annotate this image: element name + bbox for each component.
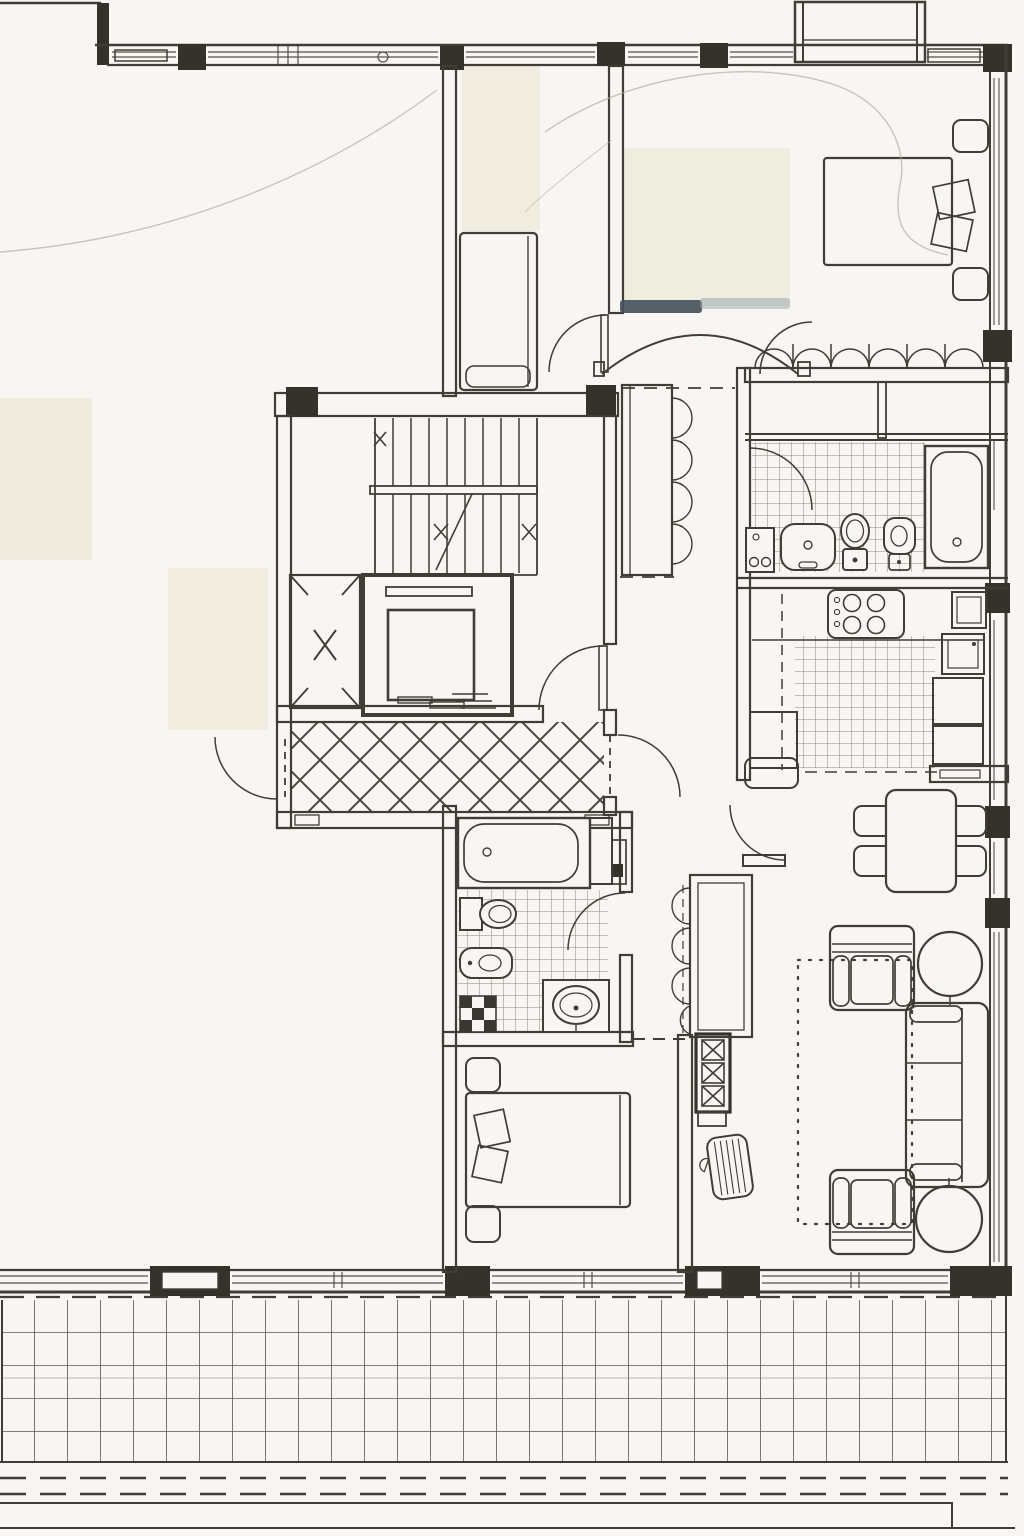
party-wall-lower: [443, 806, 456, 1272]
bottom-wall: [0, 1266, 1012, 1296]
wall-pillar: [445, 1266, 490, 1296]
upper-left-room-door: [549, 315, 608, 372]
nightstand: [953, 268, 988, 300]
wall-pillar: [700, 43, 728, 68]
corridor-wardrobe: [622, 385, 692, 575]
pillar-inner-box: [697, 1271, 722, 1289]
stair-pillar: [286, 387, 318, 417]
stair-right-wall-stub: [604, 710, 616, 735]
washbasin: [781, 524, 835, 570]
round-side-table: [916, 1186, 982, 1252]
toilet-bowl: [841, 514, 869, 548]
balcony: [795, 2, 925, 62]
living-room: [696, 926, 988, 1254]
sofa: [906, 1003, 988, 1187]
neighbor-stub-pillar: [97, 3, 109, 65]
armchair-south: [830, 1170, 914, 1254]
closet-band-bottom: [745, 434, 1008, 440]
stair-left-wall: [277, 416, 291, 828]
tape-patch: [622, 148, 790, 306]
apartment-entry-door: [539, 646, 607, 710]
tape-patch: [462, 66, 540, 231]
wall-inner-box: [940, 770, 980, 778]
wall-pillar: [950, 1266, 1012, 1296]
pillow: [474, 1109, 510, 1148]
lower-bathroom-wall-b: [620, 955, 632, 1042]
double-bed: [466, 1093, 630, 1207]
cabinet: [698, 1112, 726, 1126]
bathtub: [925, 446, 988, 568]
lower-bedroom: [466, 1058, 630, 1242]
elevator-counterweight: [386, 587, 472, 596]
nightstand: [466, 1206, 500, 1242]
wall-pillar: [983, 44, 1012, 72]
tape-patch: [0, 398, 92, 560]
lobby-hallway-door: [618, 735, 680, 797]
tv-unit: [696, 1034, 730, 1126]
seat-cushion: [851, 1180, 893, 1228]
magazine-rack: [696, 1134, 754, 1202]
upper-left-room: [460, 233, 537, 390]
kitchen-stub-wall: [930, 766, 1008, 782]
top-wall: [95, 2, 1012, 72]
neighbor-lobby-door: [215, 737, 277, 799]
wall-inner-box: [295, 815, 319, 825]
nightstand: [466, 1058, 500, 1092]
wall-pillar: [983, 330, 1012, 362]
sofa-arm: [910, 1006, 962, 1022]
ink-smear-dark: [620, 300, 702, 313]
bathroom-kitchen-wall: [737, 578, 1008, 588]
x-shaft: [290, 575, 360, 708]
closet-door-arcs: [672, 888, 690, 1034]
stair-pillar: [586, 385, 616, 415]
fridge: [933, 678, 983, 724]
stair-landing-edge: [370, 486, 537, 494]
window-sill-box: [928, 49, 980, 62]
ink-smear-light: [700, 298, 790, 309]
room-divider-wall: [609, 66, 623, 313]
sofa-cushion-lines: [906, 1063, 962, 1120]
bathroom-bedroom-wall: [443, 1032, 633, 1046]
armrest: [833, 956, 849, 1006]
counter-unit: [933, 726, 983, 764]
bedroom-living-wall: [678, 1035, 692, 1272]
armrest: [895, 956, 911, 1006]
bidet: [884, 518, 915, 554]
staircase-core: [290, 418, 537, 715]
pillar-inner-box: [162, 1272, 218, 1289]
floor-plan-page: { "document": { "type": "architectural-f…: [0, 0, 1024, 1536]
floor-plan-canvas: [0, 0, 1024, 1536]
toilet-tank: [460, 898, 482, 930]
terrace-tile-grid: [2, 1300, 1006, 1462]
right-window-glazing: [994, 78, 999, 1262]
closet-divider: [878, 382, 886, 438]
armchair-north: [830, 926, 914, 1010]
round-side-table: [918, 932, 982, 996]
pillow-drawer: [466, 366, 530, 387]
sideboard: [745, 758, 798, 788]
kitchen-tiles: [795, 636, 935, 768]
closet-hanging-rail: [755, 344, 983, 368]
neighbor-stub: [0, 3, 100, 62]
stair-treads: [393, 418, 519, 573]
party-wall-upper: [443, 66, 456, 396]
nightstand: [953, 120, 988, 152]
wall-pillar: [178, 44, 206, 70]
wardrobe-door-arcs: [672, 398, 692, 564]
hallway-closet: [672, 875, 752, 1037]
seat-cushion: [851, 956, 893, 1004]
stair-right-wall-upper: [604, 416, 616, 644]
wall-pillar: [597, 42, 625, 66]
elevator-car: [388, 610, 474, 700]
bidet: [460, 948, 512, 978]
stair-direction-marks: [374, 432, 536, 570]
wall-pillar: [985, 898, 1010, 928]
pillow: [472, 1145, 508, 1183]
elevator: [363, 575, 512, 715]
kitchen-corridor-wall: [737, 368, 750, 780]
armrest: [895, 1178, 911, 1228]
checker-drain: [460, 996, 496, 1032]
wall-pillar: [985, 806, 1010, 838]
tape-patch: [168, 568, 268, 730]
bedroom-closet-wall: [745, 368, 1008, 382]
drain: [574, 1006, 579, 1011]
dining-table: [886, 790, 956, 892]
double-bed: [824, 158, 952, 265]
armrest: [833, 1178, 849, 1228]
sofa-arm: [910, 1164, 962, 1180]
lobby-crosshatch-floor: [291, 722, 604, 812]
kitchen-table: [750, 712, 797, 768]
kitchen-dining-door: [730, 805, 785, 860]
staircase: [370, 418, 537, 575]
